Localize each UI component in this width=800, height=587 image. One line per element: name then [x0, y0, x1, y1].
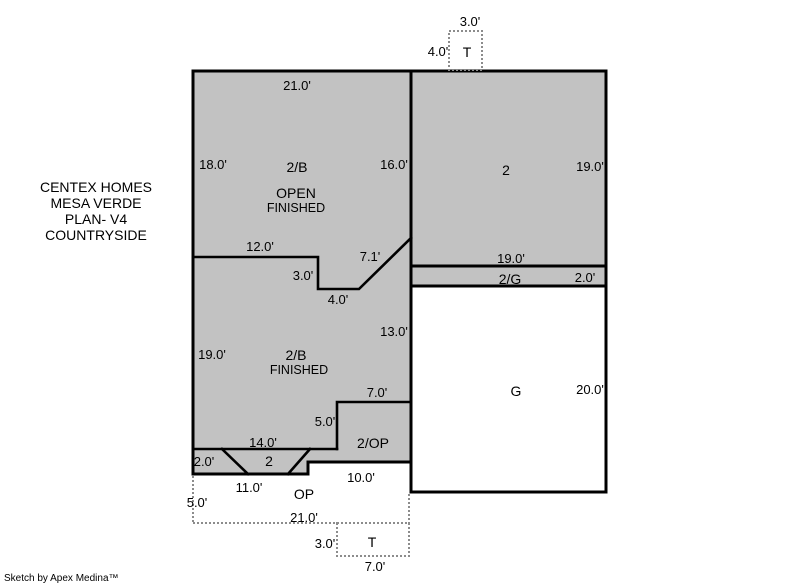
garage-strip-label: 2/G	[499, 271, 522, 287]
upper-top-dim: 21.0'	[283, 78, 311, 93]
lower-dim-5: 5.0'	[315, 414, 336, 429]
entry-left-dim: 2.0'	[194, 454, 215, 469]
upper-right-dim: 16.0'	[380, 157, 408, 172]
sketch-credit: Sketch by Apex Medina™	[4, 573, 119, 584]
title-line-3: PLAN- V4	[65, 211, 127, 227]
title-block: CENTEX HOMES MESA VERDE PLAN- V4 COUNTRY…	[40, 179, 152, 243]
entry-label: 2	[265, 453, 273, 469]
mid-dim-13: 13.0'	[380, 324, 408, 339]
upper-basement-label: 2/B	[286, 159, 307, 175]
mid-dim-71: 7.1'	[360, 249, 381, 264]
garage-strip-dim: 2.0'	[575, 270, 596, 285]
garage-label: G	[511, 383, 522, 399]
mid-dim-4: 4.0'	[328, 292, 349, 307]
title-line-1: CENTEX HOMES	[40, 179, 152, 195]
top-deck-label: T	[463, 44, 472, 60]
bottom-deck-left-dim: 3.0'	[315, 536, 336, 551]
floorplan-canvas: 3.0' 4.0' T 21.0' 18.0' 2/B OPEN FINISHE…	[0, 0, 800, 587]
op-dim-11: 11.0'	[236, 480, 263, 495]
lower-dim-7: 7.0'	[367, 385, 388, 400]
bottom-deck-bottom-dim: 7.0'	[365, 559, 386, 574]
upper-basement-sub2: FINISHED	[267, 201, 325, 215]
bottom-deck-label: T	[368, 534, 377, 550]
lower-basement-label: 2/B	[285, 347, 306, 363]
op-label: OP	[294, 486, 314, 502]
top-deck-height-dim: 4.0'	[428, 44, 449, 59]
top-deck-width-dim: 3.0'	[460, 14, 481, 29]
story-bottom-dim: 19.0'	[497, 251, 525, 266]
upper-left-dim: 18.0'	[199, 157, 227, 172]
sketch-page: 3.0' 4.0' T 21.0' 18.0' 2/B OPEN FINISHE…	[0, 0, 800, 587]
garage-right-dim: 20.0'	[576, 382, 604, 397]
upper-porch-label: 2/OP	[357, 435, 389, 451]
lower-dim-14: 14.0'	[249, 435, 277, 450]
op-dim-21: 21.0'	[290, 510, 318, 525]
story-block-label: 2	[502, 162, 510, 178]
title-line-4: COUNTRYSIDE	[45, 227, 147, 243]
story-right-dim: 19.0'	[576, 159, 604, 174]
op-dim-5: 5.0'	[187, 495, 208, 510]
mid-dim-12: 12.0'	[246, 239, 274, 254]
mid-dim-3: 3.0'	[293, 268, 314, 283]
lower-basement-sub1: FINISHED	[270, 363, 328, 377]
upper-porch-bottom-dim: 10.0'	[347, 470, 375, 485]
title-line-2: MESA VERDE	[50, 195, 141, 211]
lower-left-dim: 19.0'	[198, 347, 226, 362]
upper-basement-sub1: OPEN	[276, 185, 316, 201]
